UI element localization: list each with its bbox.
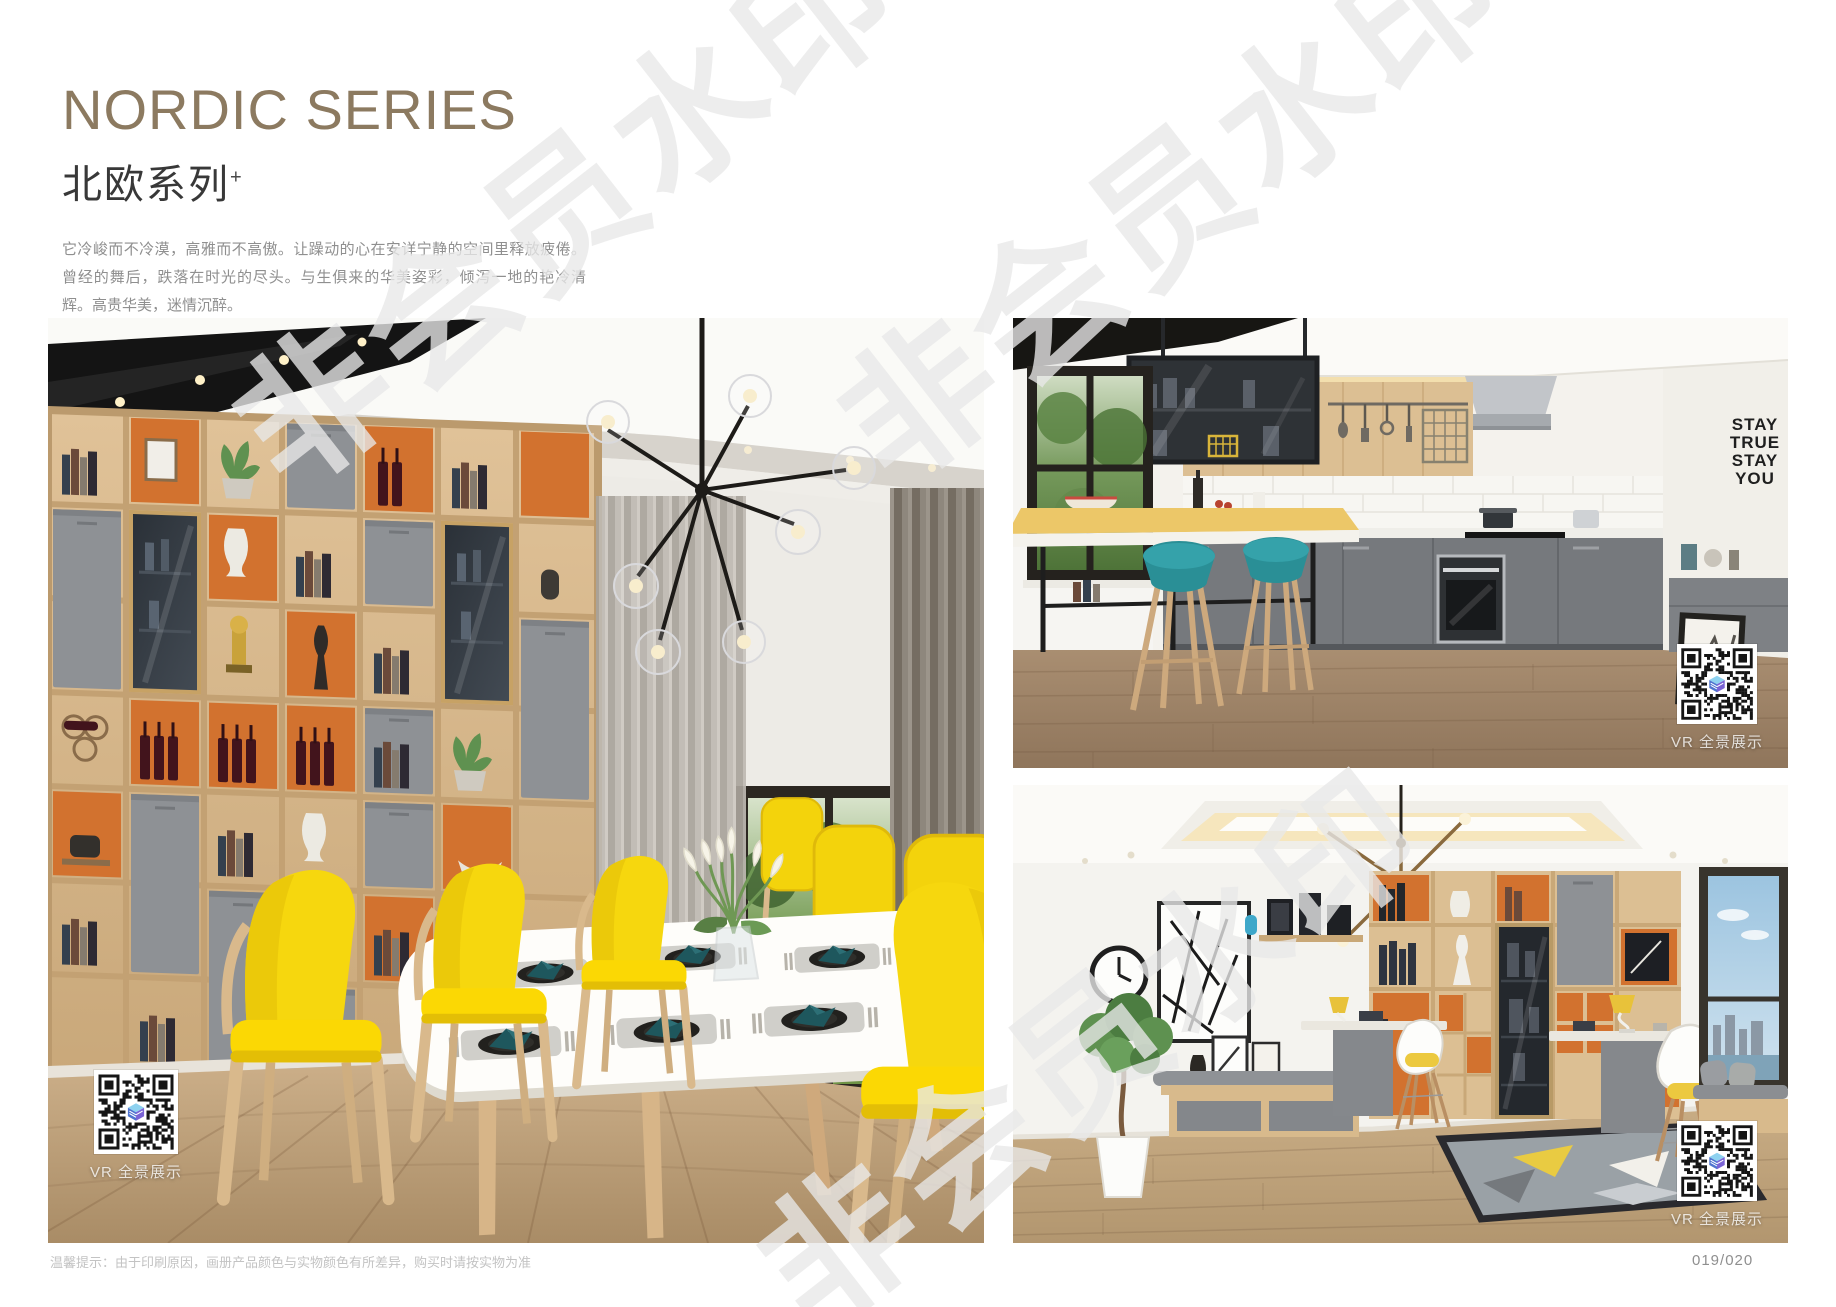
svg-text:TRUE: TRUE bbox=[1730, 433, 1780, 452]
range-hood bbox=[1465, 376, 1557, 430]
footer-disclaimer: 温馨提示：由于印刷原因，画册产品颜色与实物颜色有所差异，购买时请按实物为准 bbox=[50, 1252, 531, 1271]
svg-text:YOU: YOU bbox=[1735, 469, 1775, 488]
description-chinese: 它冷峻而不冷漠，高雅而不高傲。让躁动的心在安详宁静的空间里释放疲倦。曾经的舞后，… bbox=[62, 236, 586, 319]
kitchen-photo: STAY TRUE STAY YOU bbox=[1013, 318, 1788, 768]
vr-label: VR 全景展示 bbox=[90, 1161, 182, 1182]
built-in-oven bbox=[1438, 556, 1504, 642]
study-room-photo: VR 全景展示 bbox=[1013, 785, 1788, 1243]
vr-qr-code bbox=[1677, 644, 1757, 724]
wall-art-text: STAY TRUE STAY YOU bbox=[1730, 415, 1780, 488]
vr-qr-badge: VR 全景展示 bbox=[90, 1070, 182, 1182]
vr-qr-badge: VR 全景展示 bbox=[1671, 644, 1763, 752]
dining-room-scene bbox=[48, 318, 984, 1243]
vr-qr-badge: VR 全景展示 bbox=[1671, 1121, 1763, 1229]
window bbox=[1699, 867, 1788, 1089]
page-number: 019/020 bbox=[1692, 1252, 1753, 1269]
artwork-frame bbox=[1159, 903, 1249, 1041]
qr-logo-cube-icon bbox=[1707, 1151, 1727, 1171]
vr-qr-code bbox=[94, 1070, 178, 1154]
qr-logo-cube-icon bbox=[1707, 674, 1727, 694]
page-title: NORDIC SERIES bbox=[62, 82, 602, 138]
svg-text:STAY: STAY bbox=[1732, 451, 1779, 470]
svg-text:STAY: STAY bbox=[1732, 415, 1779, 434]
qr-logo-cube-icon bbox=[126, 1102, 147, 1123]
vr-label: VR 全景展示 bbox=[1671, 1208, 1763, 1229]
catalog-page: 非会员水印 非会员水印 非会员水印 NORDIC SERIES 北欧系列+ 它冷… bbox=[0, 0, 1836, 1307]
vr-qr-code bbox=[1677, 1121, 1757, 1201]
vr-label: VR 全景展示 bbox=[1671, 731, 1763, 752]
page-subtitle: 北欧系列+ bbox=[62, 152, 602, 210]
dining-room-photo: VR 全景展示 bbox=[48, 318, 984, 1243]
subtitle-text: 北欧系列 bbox=[62, 163, 230, 207]
subtitle-plus-mark: + bbox=[230, 167, 244, 189]
wall-clock bbox=[1092, 948, 1146, 1002]
